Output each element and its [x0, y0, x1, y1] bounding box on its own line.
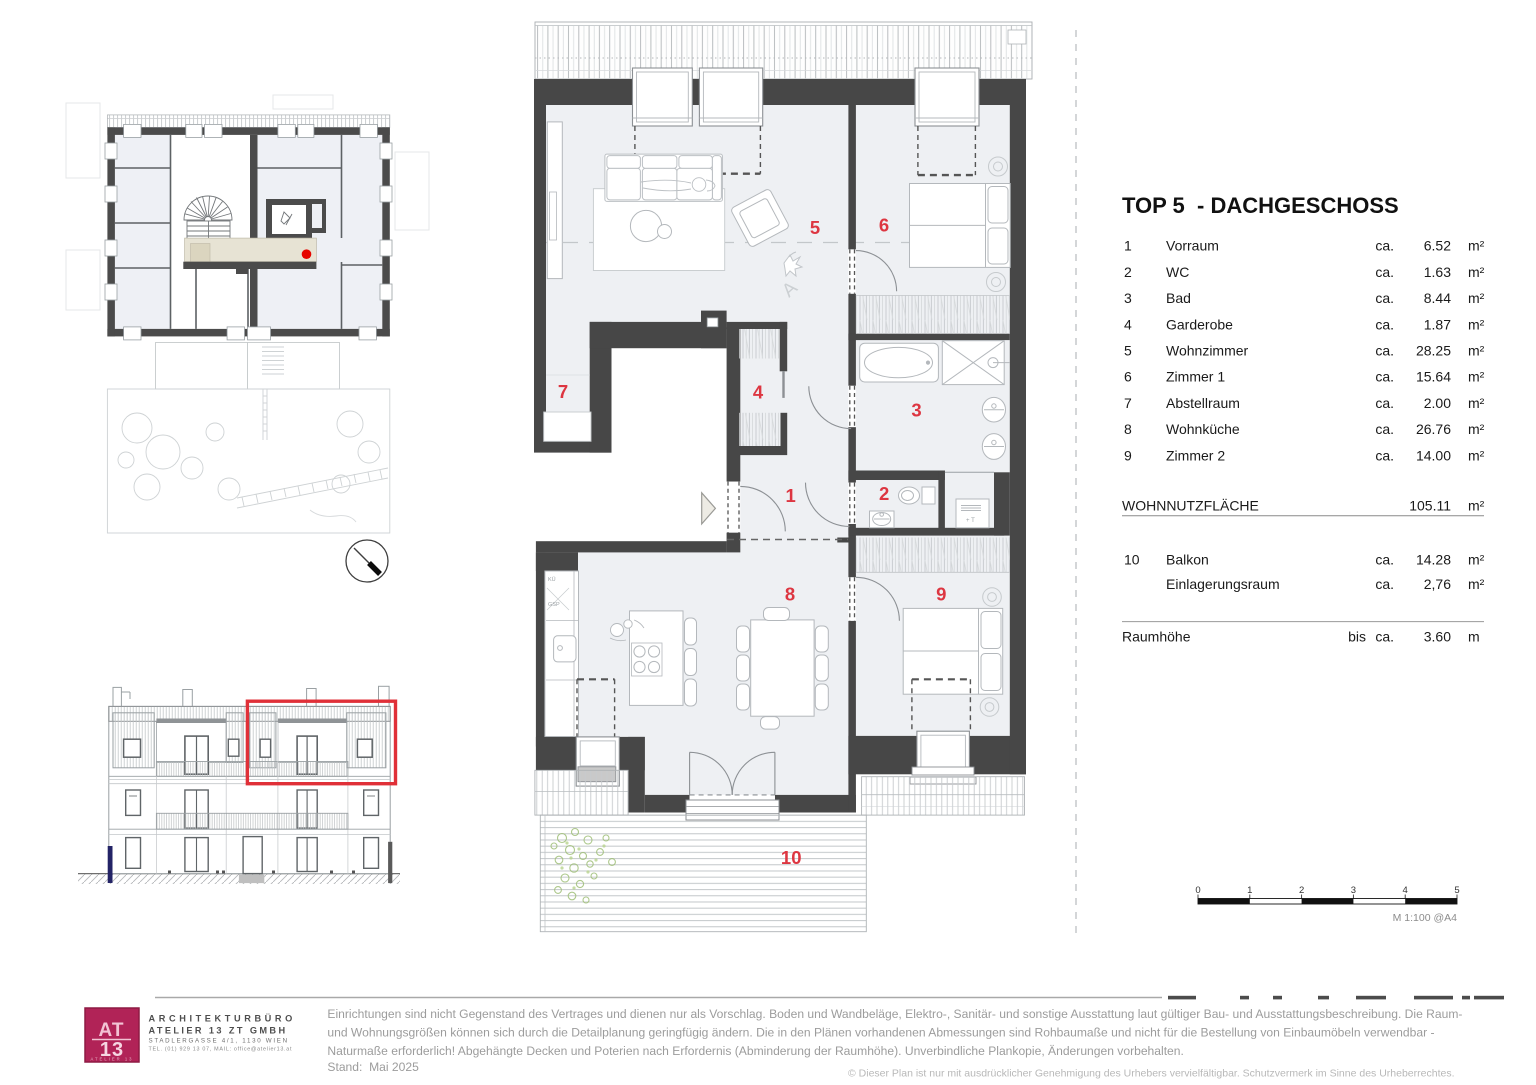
svg-text:AT: AT	[99, 1020, 125, 1041]
svg-text:ca.: ca.	[1375, 290, 1394, 306]
svg-text:ca.: ca.	[1375, 238, 1394, 254]
svg-text:105.11: 105.11	[1409, 498, 1451, 514]
svg-text:14.28: 14.28	[1416, 552, 1451, 568]
svg-text:1.63: 1.63	[1424, 264, 1451, 280]
svg-text:M 1:100 @A4: M 1:100 @A4	[1393, 912, 1458, 924]
svg-text:5: 5	[1454, 885, 1459, 896]
svg-text:ATELIER 13: ATELIER 13	[91, 1057, 134, 1062]
svg-text:bis: bis	[1348, 629, 1366, 645]
svg-text:3: 3	[1351, 885, 1356, 896]
svg-text:m²: m²	[1468, 552, 1485, 568]
svg-text:7: 7	[1124, 395, 1132, 411]
svg-text:ATELIER 13 ZT GMBH: ATELIER 13 ZT GMBH	[149, 1026, 288, 1036]
svg-text:WC: WC	[1166, 264, 1189, 280]
svg-text:Zimmer 2: Zimmer 2	[1166, 447, 1225, 463]
svg-text:4: 4	[1403, 885, 1408, 896]
svg-text:m: m	[1468, 629, 1480, 645]
svg-text:4: 4	[753, 382, 764, 403]
svg-text:m²: m²	[1468, 290, 1485, 306]
svg-text:2: 2	[1124, 264, 1132, 280]
svg-text:+ T: + T	[966, 518, 975, 524]
svg-text:ca.: ca.	[1375, 447, 1394, 463]
svg-text:Vorraum: Vorraum	[1166, 238, 1219, 254]
svg-text:Garderobe: Garderobe	[1166, 316, 1233, 332]
svg-text:28.25: 28.25	[1416, 343, 1451, 359]
svg-text:0: 0	[1195, 885, 1200, 896]
svg-text:WOHNNUTZFLÄCHE: WOHNNUTZFLÄCHE	[1122, 498, 1259, 514]
svg-text:TEL. (01) 929 13 07, MAIL: off: TEL. (01) 929 13 07, MAIL: office@atelie…	[149, 1047, 293, 1053]
svg-text:ca.: ca.	[1375, 316, 1394, 332]
svg-text:Einrichtungen sind nicht Gegen: Einrichtungen sind nicht Gegenstand des …	[327, 1007, 1462, 1021]
svg-text:8.44: 8.44	[1424, 290, 1451, 306]
svg-text:7: 7	[558, 381, 568, 402]
svg-text:3: 3	[911, 399, 921, 420]
svg-text:STADLERGASSE 4/1, 1130 WIEN: STADLERGASSE 4/1, 1130 WIEN	[149, 1038, 289, 1045]
svg-text:2.00: 2.00	[1424, 395, 1451, 411]
svg-text:KÜ: KÜ	[548, 576, 556, 583]
svg-text:m²: m²	[1468, 447, 1485, 463]
svg-text:1: 1	[1247, 885, 1252, 896]
svg-text:5: 5	[1124, 343, 1132, 359]
svg-text:Naturmaße erforderlich! Abgehä: Naturmaße erforderlich! Abgehängte Decke…	[327, 1044, 1183, 1058]
svg-text:m²: m²	[1468, 264, 1485, 280]
svg-text:1: 1	[1124, 238, 1132, 254]
svg-text:Stand: Mai 2025: Stand: Mai 2025	[327, 1060, 419, 1074]
svg-text:2,76: 2,76	[1424, 576, 1451, 592]
svg-text:ca.: ca.	[1375, 264, 1394, 280]
svg-text:m²: m²	[1468, 576, 1485, 592]
svg-text:9: 9	[936, 584, 946, 605]
svg-text:Zimmer 1: Zimmer 1	[1166, 369, 1225, 385]
svg-text:ca.: ca.	[1375, 576, 1394, 592]
svg-text:26.76: 26.76	[1416, 421, 1451, 437]
svg-text:ARCHITEKTURBÜRO: ARCHITEKTURBÜRO	[149, 1014, 296, 1024]
svg-text:1.87: 1.87	[1424, 316, 1451, 332]
svg-text:ca.: ca.	[1375, 369, 1394, 385]
svg-text:9: 9	[1124, 447, 1132, 463]
svg-text:8: 8	[1124, 421, 1132, 437]
svg-text:Bad: Bad	[1166, 290, 1191, 306]
svg-text:10: 10	[781, 847, 802, 868]
svg-text:Einlagerungsraum: Einlagerungsraum	[1166, 576, 1280, 592]
svg-text:1: 1	[786, 485, 796, 506]
svg-text:m²: m²	[1468, 343, 1485, 359]
svg-text:10: 10	[1124, 552, 1140, 568]
svg-text:2: 2	[879, 483, 889, 504]
svg-text:ca.: ca.	[1375, 421, 1394, 437]
svg-text:m²: m²	[1468, 238, 1485, 254]
svg-text:8: 8	[785, 584, 795, 605]
svg-text:m²: m²	[1468, 316, 1485, 332]
svg-text:m²: m²	[1468, 369, 1485, 385]
svg-text:3.60: 3.60	[1424, 629, 1451, 645]
svg-text:6.52: 6.52	[1424, 238, 1451, 254]
svg-text:3: 3	[1124, 290, 1132, 306]
svg-text:2: 2	[1299, 885, 1304, 896]
svg-text:ca.: ca.	[1375, 629, 1394, 645]
svg-text:Balkon: Balkon	[1166, 552, 1209, 568]
svg-text:14.00: 14.00	[1416, 447, 1451, 463]
svg-text:Wohnzimmer: Wohnzimmer	[1166, 343, 1249, 359]
svg-text:TOP 5 - DACHGESCHOSS: TOP 5 - DACHGESCHOSS	[1122, 193, 1399, 218]
svg-text:Wohnküche: Wohnküche	[1166, 421, 1240, 437]
svg-text:und Wohnungsgrößen können sich: und Wohnungsgrößen können sich durch die…	[327, 1026, 1434, 1040]
svg-text:ca.: ca.	[1375, 552, 1394, 568]
svg-text:ca.: ca.	[1375, 395, 1394, 411]
svg-text:5: 5	[810, 217, 820, 238]
svg-text:m²: m²	[1468, 498, 1485, 514]
svg-text:m²: m²	[1468, 395, 1485, 411]
svg-text:15.64: 15.64	[1416, 369, 1451, 385]
svg-text:m²: m²	[1468, 421, 1485, 437]
svg-text:4: 4	[1124, 316, 1132, 332]
svg-text:© Dieser Plan ist nur mit ausd: © Dieser Plan ist nur mit ausdrücklicher…	[848, 1068, 1455, 1080]
svg-text:6: 6	[879, 214, 889, 235]
svg-text:GSP: GSP	[548, 602, 560, 608]
svg-text:6: 6	[1124, 369, 1132, 385]
svg-text:ca.: ca.	[1375, 343, 1394, 359]
svg-text:Raumhöhe: Raumhöhe	[1122, 629, 1191, 645]
svg-text:Abstellraum: Abstellraum	[1166, 395, 1240, 411]
